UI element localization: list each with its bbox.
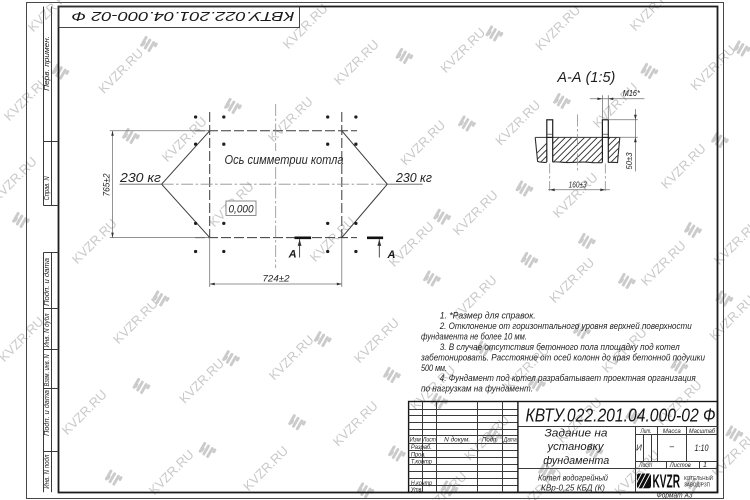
svg-text:500 мм.: 500 мм.	[421, 363, 447, 373]
svg-text:Перв. примен.: Перв. примен.	[42, 36, 51, 91]
svg-text:Лит.: Лит.	[640, 429, 652, 435]
svg-text:Масса: Масса	[663, 429, 682, 435]
svg-text:КВТУ.022.201.04.000-02 Ф: КВТУ.022.201.04.000-02 Ф	[72, 9, 295, 24]
svg-text:2. Отклонение от горизонтал: 2. Отклонение от горизонтального уровня …	[439, 321, 692, 331]
svg-text:N докум.: N докум.	[444, 438, 470, 444]
svg-text:Инв. N дубл: Инв. N дубл	[43, 313, 51, 347]
svg-text:Котел водогрейный: Котел водогрейный	[538, 473, 608, 483]
svg-text:КВр-0,25 КБД (К): КВр-0,25 КБД (К)	[541, 482, 605, 492]
svg-text:забетонировать. Расстояние о: забетонировать. Расстояние от осей колон…	[420, 352, 705, 362]
svg-text:Утв.: Утв.	[410, 487, 423, 494]
svg-text:0,000: 0,000	[229, 204, 255, 216]
svg-text:Лист: Лист	[422, 438, 436, 444]
svg-text:Т.контр: Т.контр	[411, 459, 432, 466]
svg-text:724±2: 724±2	[263, 274, 290, 284]
svg-text:Лист: Лист	[638, 462, 652, 469]
svg-text:230 кг: 230 кг	[119, 170, 162, 185]
svg-text:Разраб.: Разраб.	[411, 444, 432, 451]
svg-text:КВТУ.022.201.04.000-02 Ф: КВТУ.022.201.04.000-02 Ф	[526, 406, 716, 426]
svg-text:Подп.: Подп.	[482, 438, 498, 444]
svg-text:Задание на: Задание на	[545, 427, 608, 439]
svg-text:Изм: Изм	[410, 438, 421, 444]
svg-text:М16*: М16*	[623, 89, 641, 98]
svg-text:Справ. N: Справ. N	[44, 176, 51, 201]
svg-text:Листов: Листов	[669, 462, 692, 469]
svg-text:А: А	[387, 249, 396, 261]
svg-text:И: И	[636, 444, 642, 453]
svg-text:4. Фундамент под котел раз: 4. Фундамент под котел разрабатывает про…	[440, 373, 696, 383]
svg-text:KVZR: KVZR	[653, 470, 681, 491]
svg-text:1:10: 1:10	[695, 443, 709, 453]
svg-text:фундамента не более 10 мм.: фундамента не более 10 мм.	[421, 332, 527, 342]
svg-text:Формат А3: Формат А3	[657, 491, 694, 500]
svg-text:по нагрузкам на фундамент.: по нагрузкам на фундамент.	[421, 384, 533, 394]
svg-text:Взам. инв. N: Взам. инв. N	[44, 354, 51, 387]
svg-text:230 кг: 230 кг	[395, 170, 433, 185]
svg-text:Подп. и дата: Подп. и дата	[42, 258, 51, 306]
svg-text:фундамента: фундамента	[543, 455, 609, 467]
svg-text:Дата: Дата	[503, 438, 517, 444]
svg-text:ЗАВОД РЗП: ЗАВОД РЗП	[684, 482, 710, 488]
svg-text:А-А (1:5): А-А (1:5)	[556, 70, 615, 86]
svg-text:Инв. N подл: Инв. N подл	[43, 455, 51, 489]
svg-text:Пров.: Пров.	[411, 452, 426, 459]
svg-text:Масштаб: Масштаб	[689, 429, 716, 435]
svg-text:установку: установку	[546, 441, 604, 453]
svg-text:1. *Размер для справок.: 1. *Размер для справок.	[440, 311, 536, 321]
svg-text:А: А	[288, 249, 297, 261]
svg-text:3. В случае отсутствия бет: 3. В случае отсутствия бетонного пола пл…	[440, 342, 680, 352]
svg-text:160±3: 160±3	[569, 179, 587, 189]
svg-text:765±2: 765±2	[102, 174, 112, 197]
svg-text:50±3: 50±3	[624, 152, 634, 169]
svg-text:Ось симметрии котла: Ось симметрии котла	[225, 153, 344, 167]
svg-text:КОТЕЛЬНЫЙ: КОТЕЛЬНЫЙ	[684, 474, 713, 482]
svg-text:Подп. и дата: Подп. и дата	[42, 390, 51, 436]
svg-text:–: –	[669, 442, 675, 451]
svg-text:1: 1	[703, 462, 707, 469]
